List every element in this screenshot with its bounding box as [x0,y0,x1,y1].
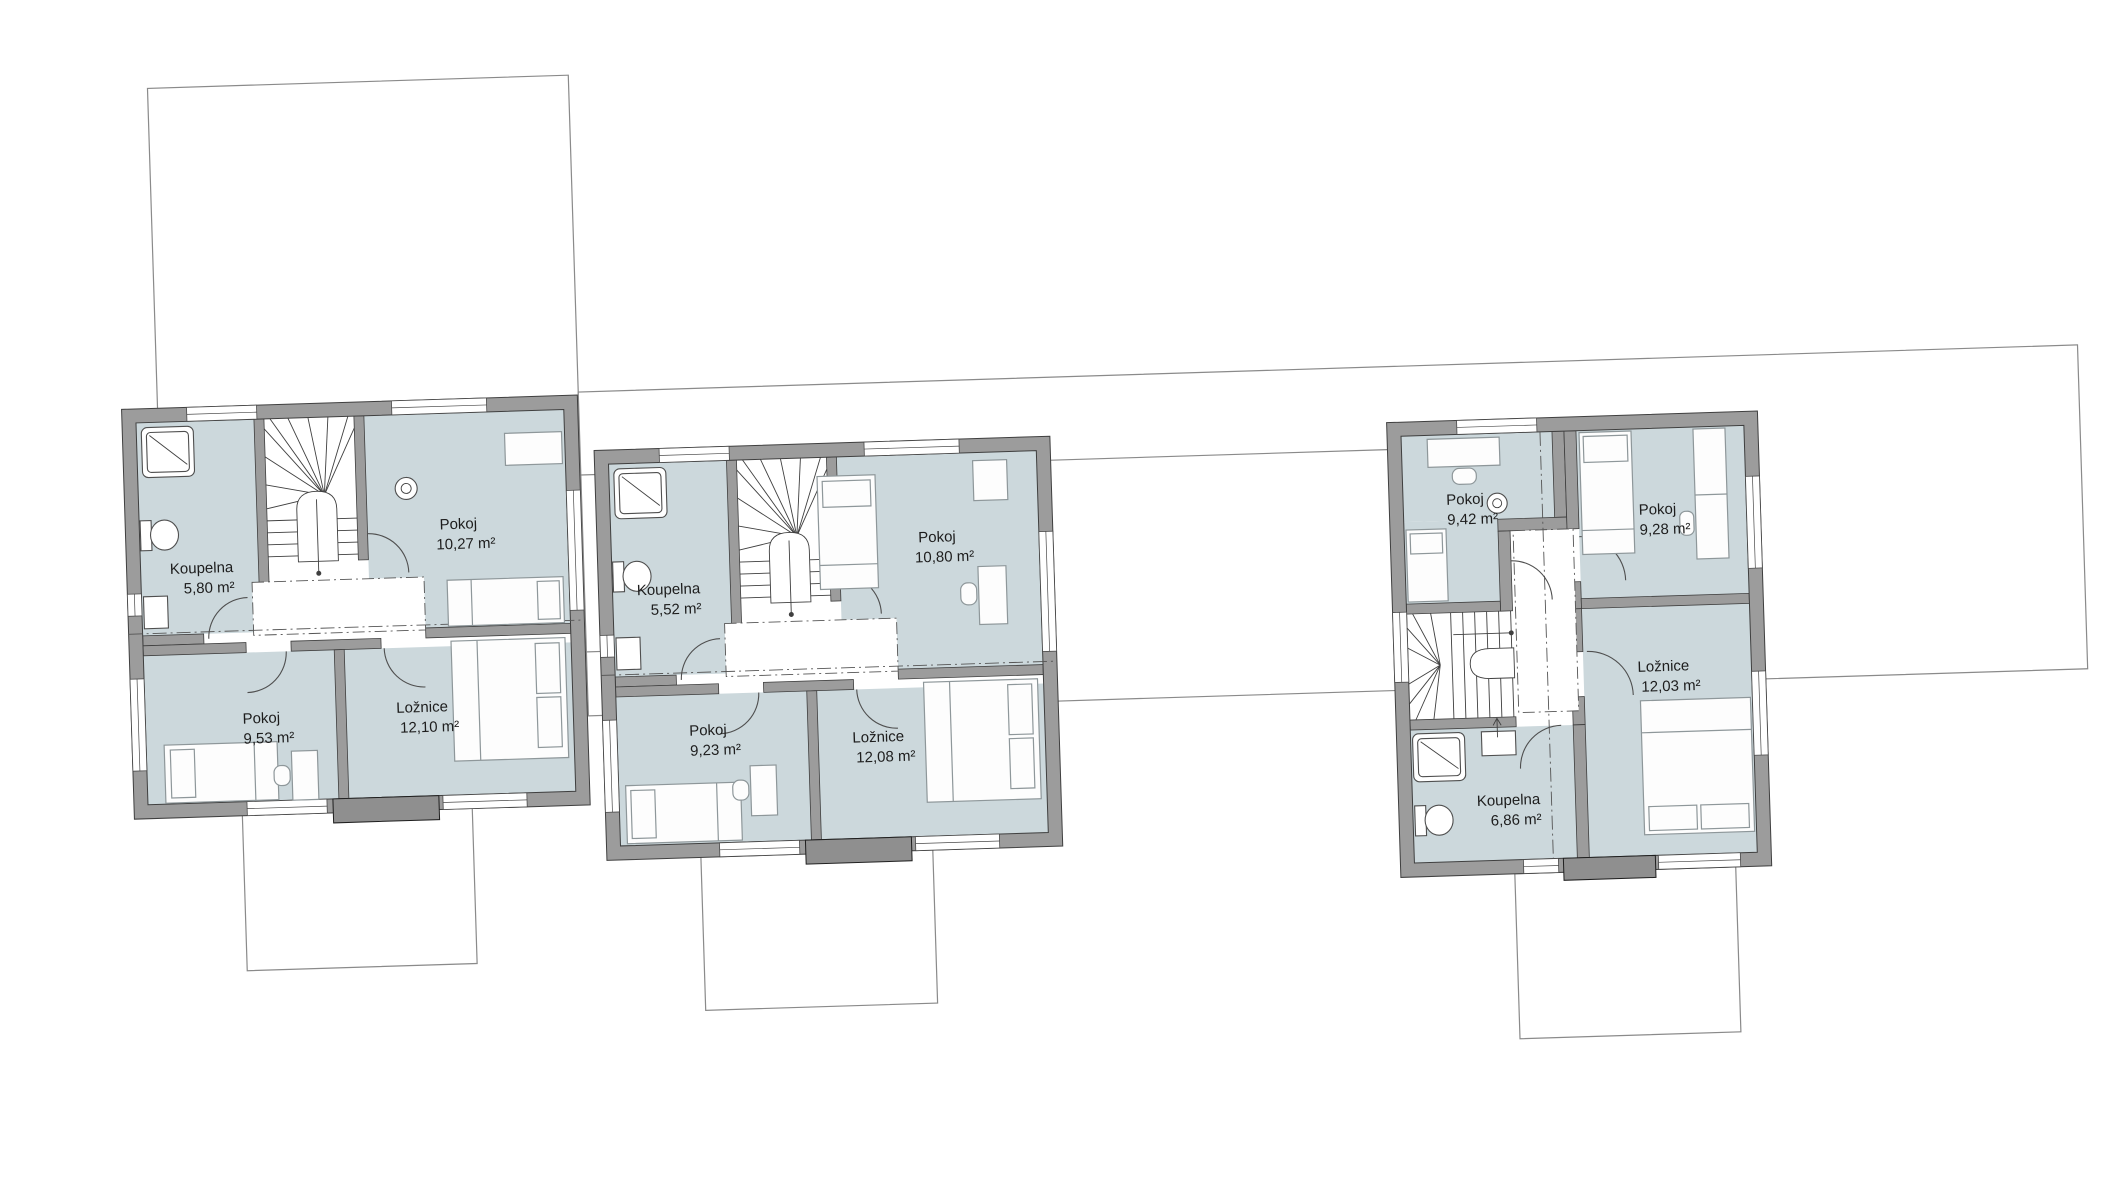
room-label: Ložnice [396,698,448,717]
bed-single-bottom [164,742,279,804]
room-area: 10,27 m² [436,535,496,554]
room-label: Ložnice [852,728,904,747]
room-area: 5,52 m² [650,600,701,619]
exterior-wall-pier [1563,855,1656,880]
wardrobe [504,432,562,466]
room-label: Koupelna [170,559,235,578]
room-area: 5,80 m² [184,579,235,598]
floor-plan-canvas: Koupelna 5,80 m² Pokoj 10,27 m² Pokoj 9,… [0,0,2120,1200]
sink [143,596,168,629]
house-1: Koupelna 5,80 m² Pokoj 10,27 m² Pokoj 9,… [122,395,591,829]
hall-landing [252,577,426,635]
terrace-outline-3 [1515,867,1741,1039]
room-label: Pokoj [439,515,477,533]
room-label: Pokoj [689,722,727,740]
bed-double [451,638,569,762]
bed-single-bottom [626,782,743,844]
exterior-wall-pier [805,837,912,864]
house-3: Pokoj 9,42 m² Pokoj 9,28 m² Ložnice 12,0… [1387,411,1772,885]
bed-double [1640,697,1754,834]
room-area: 9,42 m² [1447,510,1498,529]
shower [1412,732,1465,782]
terrace-outline-1 [242,802,477,971]
bed-single-right [1579,431,1635,555]
terrace-outline-2 [701,840,938,1010]
room-label: Koupelna [1477,791,1542,810]
house-2: Koupelna 5,52 m² Pokoj 10,80 m² Pokoj 9,… [594,436,1063,870]
room-label: Ložnice [1637,657,1689,676]
room-label: Pokoj [918,528,956,546]
sink [616,637,641,670]
room-label: Koupelna [637,580,702,599]
room-area: 9,28 m² [1639,520,1690,539]
room-area: 9,23 m² [690,741,741,760]
room-area: 12,08 m² [856,748,916,767]
bed-single-left [1406,529,1448,602]
bed-double [924,679,1042,803]
bed-single-top [447,577,564,627]
shower [141,426,195,478]
bed-single-top [817,475,879,590]
room-label: Pokoj [1638,501,1676,519]
room-area: 12,03 m² [1641,677,1701,696]
exterior-wall-pier [333,796,440,823]
ceiling-lamp [395,477,418,500]
room-label: Pokoj [1446,491,1484,509]
room-area: 6,86 m² [1490,811,1541,830]
hall-landing [725,618,899,676]
floor-plan-drawing: Koupelna 5,80 m² Pokoj 10,27 m² Pokoj 9,… [0,0,2120,1200]
room-area: 9,53 m² [243,729,294,748]
toilet [140,520,179,551]
toilet [1415,805,1454,836]
wardrobe [973,460,1008,501]
room-label: Pokoj [242,710,280,728]
room-area: 12,10 m² [400,718,460,737]
room-area: 10,80 m² [915,548,975,567]
hall-landing [1513,529,1579,713]
shower [614,467,668,519]
